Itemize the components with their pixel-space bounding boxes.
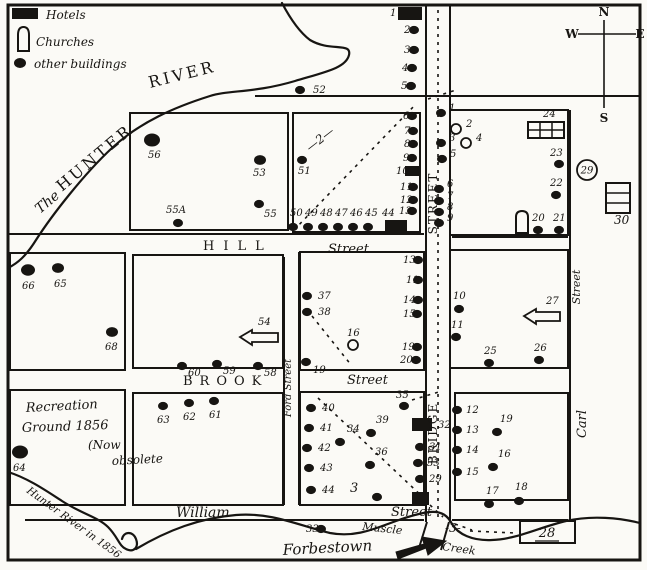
building-dot-13: [452, 426, 462, 434]
building-number: 47: [334, 208, 348, 219]
town-block: [133, 255, 283, 368]
building-number: 64: [13, 463, 26, 474]
building-number: 30: [614, 213, 630, 227]
building-dot-50: [288, 223, 298, 231]
building-number: 10: [453, 291, 466, 302]
map-text: -3-: [445, 521, 461, 535]
arrow-building-27: [524, 309, 560, 324]
building-number: 55A: [166, 205, 186, 216]
map-text: Street: [328, 242, 370, 257]
building-number: 19: [500, 414, 513, 425]
map-text: Ford Street: [283, 358, 294, 418]
map-text: Forbestown: [281, 536, 372, 559]
building-number: 7: [447, 191, 454, 202]
map-text: Street: [391, 505, 433, 520]
building-number: 5: [450, 149, 456, 160]
building-number: 61: [209, 410, 222, 421]
building-dot-18: [514, 497, 524, 505]
church-icon: [516, 211, 528, 233]
building-number: 23: [549, 148, 563, 159]
building-dot-40: [306, 404, 316, 412]
legend-churches-label: Churches: [36, 35, 94, 49]
building-number: 45: [364, 208, 378, 219]
building-number: 50: [290, 208, 303, 219]
building-number: 46: [349, 208, 363, 219]
building-number: 2: [465, 119, 472, 130]
building-dot-26: [534, 356, 544, 364]
building-dot-62: [184, 399, 194, 407]
building-dot-53: [254, 155, 266, 165]
compass-rose: N E S W: [564, 5, 644, 125]
building-number: 4: [475, 133, 482, 144]
building-dot-17: [484, 500, 494, 508]
building-number: 51: [298, 166, 311, 177]
building-number: 54: [258, 317, 271, 328]
compass-north-label: N: [599, 5, 610, 19]
building-dot-5: [406, 82, 416, 90]
building-number: 2: [403, 25, 410, 36]
open-circle-building-4: [461, 138, 471, 148]
building-number: 33: [306, 524, 319, 535]
map-text: Street: [570, 269, 583, 304]
open-circle-building-2: [451, 124, 461, 134]
building-number: 9: [447, 213, 454, 224]
building-number: 44: [321, 485, 335, 496]
building-dot-55: [254, 200, 264, 208]
building-number: 34: [347, 424, 360, 435]
building-number: 13: [466, 425, 479, 436]
legend: Hotels Churches other buildings: [12, 8, 127, 71]
building-dot-11: [451, 333, 461, 341]
map-text: Recreation: [24, 397, 98, 416]
building-dot-35: [399, 402, 409, 410]
building-number: 20: [399, 355, 413, 366]
map-text: William: [176, 505, 230, 521]
building-dot-41: [304, 424, 314, 432]
building-number: 44: [381, 208, 395, 219]
building-number: 8: [404, 139, 410, 150]
building-number: 38: [318, 307, 331, 318]
building-number: 1: [390, 8, 396, 19]
row-building-30: [606, 183, 630, 213]
building-number: 42: [317, 443, 331, 454]
building-dot-51: [297, 156, 307, 164]
building-dot-61: [209, 397, 219, 405]
building-number: 9: [403, 153, 410, 164]
building-number: 22: [549, 178, 563, 189]
building-number: 21: [552, 213, 566, 224]
building-number: 63: [157, 415, 170, 426]
building-number: 20: [531, 213, 545, 224]
building-dot-15: [452, 468, 462, 476]
building-number: 4: [401, 63, 408, 74]
building-dot-2: [409, 26, 419, 34]
building-number: 52: [313, 85, 326, 96]
building-number: 37: [318, 291, 331, 302]
map-text: STREET: [426, 172, 440, 235]
building-dot-46: [348, 223, 358, 231]
building-number: 16: [498, 449, 511, 460]
building-number: 35: [396, 390, 409, 401]
building-number: 43: [319, 463, 333, 474]
building-dot-31: [415, 443, 425, 451]
building-dot-3: [436, 139, 446, 147]
map-text: Ground 1856: [22, 418, 109, 436]
building-number: 41: [319, 423, 333, 434]
legend-other-buildings-label: other buildings: [34, 57, 127, 71]
building-number: 13: [399, 206, 412, 217]
map-text: The: [32, 188, 63, 217]
map-text: (Now: [88, 438, 121, 452]
building-number: 49: [304, 208, 318, 219]
building-number: 62: [183, 412, 196, 423]
building-dot-58: [253, 362, 263, 370]
building-dot-33: [413, 459, 423, 467]
building-dot-47: [333, 223, 343, 231]
building-dot-3: [409, 46, 419, 54]
hunter-river-1856: [8, 472, 137, 550]
building-number: 18: [515, 482, 528, 493]
building-number: 19: [402, 342, 415, 353]
building-dot-20: [533, 226, 543, 234]
map-text: 3: [350, 481, 358, 496]
building-dot-1: [436, 109, 446, 117]
building-dot-65: [52, 263, 64, 273]
building-number: 7: [404, 126, 411, 137]
building-dot-22: [551, 191, 561, 199]
building-dot-23: [554, 160, 564, 168]
building-number: 24: [542, 109, 556, 120]
legend-hotels-label: Hotels: [45, 8, 86, 22]
building-dot-64: [12, 445, 28, 458]
map-text: HILL: [203, 239, 273, 254]
building-number: 48: [319, 208, 333, 219]
building-number: 65: [54, 279, 67, 290]
building-number: 29: [428, 474, 442, 485]
building-number: 13: [403, 255, 416, 266]
building-dot-19: [492, 428, 502, 436]
building-number: 56: [148, 150, 161, 161]
map-text: BRIDGE: [426, 402, 440, 465]
building-number: 1: [449, 103, 455, 114]
building-number: 40: [321, 403, 335, 414]
building-number: 12: [466, 405, 479, 416]
building-dot-59: [212, 360, 222, 368]
building-number: 39: [376, 415, 389, 426]
hotel-building-x: [412, 492, 429, 505]
building-dot-48: [318, 223, 328, 231]
building-dot-68: [106, 327, 118, 337]
building-dot-60: [177, 362, 187, 370]
hotel-building-1: [398, 7, 422, 20]
building-number: 14: [466, 445, 479, 456]
building-number: 8: [447, 202, 453, 213]
route-2-dashed-ext: [428, 90, 456, 99]
building-dot-21: [554, 226, 564, 234]
building-number: 27: [545, 296, 559, 307]
hand-drawn-town-map: Hotels Churches other buildings N E S W …: [0, 0, 647, 570]
building-number: 19: [313, 365, 326, 376]
building-number: 36: [375, 447, 388, 458]
map-text: HUNTER: [52, 120, 136, 195]
building-dot-43: [304, 464, 314, 472]
building-dot-63: [158, 402, 168, 410]
hotel-building-44: [385, 220, 407, 232]
map-text: RIVER: [146, 57, 217, 92]
building-dot-55A: [173, 219, 183, 227]
building-dot-45: [363, 223, 373, 231]
building-number: 25: [483, 346, 497, 357]
route-2-block-diagonal: [312, 316, 352, 366]
building-number: 12: [400, 195, 413, 206]
map-text: —2—: [303, 124, 337, 155]
map-text: BROOK: [183, 374, 268, 389]
open-circle-building-16: [348, 340, 358, 350]
arrow-building-54: [240, 330, 278, 345]
building-number: 26: [533, 343, 547, 354]
building-number: 66: [22, 281, 35, 292]
hotel-swatch-icon: [12, 8, 38, 19]
building-dot-29: [415, 475, 425, 483]
building-number: 15: [466, 467, 479, 478]
building-dot-12: [452, 406, 462, 414]
building-dot-44: [306, 486, 316, 494]
building-number: 3: [404, 45, 410, 56]
building-number: 5: [401, 81, 407, 92]
route-3-dashed-east: [470, 531, 516, 533]
building-number: 15: [403, 309, 416, 320]
map-canvas: Hotels Churches other buildings N E S W …: [0, 0, 647, 570]
building-number: 55: [264, 209, 277, 220]
building-dot-x: [372, 493, 382, 501]
map-text: Carl: [575, 410, 590, 438]
town-block: [450, 250, 568, 368]
building-number: 11: [400, 182, 413, 193]
building-dot-38: [302, 308, 312, 316]
map-text: Street: [347, 373, 389, 388]
building-dot-56: [144, 133, 160, 146]
building-number: 16: [347, 328, 360, 339]
map-text: Hunter River in 1856: [23, 484, 123, 561]
building-dot-10: [454, 305, 464, 313]
building-number: 17: [486, 486, 499, 497]
building-dot-36: [365, 461, 375, 469]
building-number: 6: [403, 111, 410, 122]
building-number: 11: [406, 275, 419, 286]
map-text: Muscle: [361, 520, 404, 537]
building-dot-14: [452, 446, 462, 454]
compass-west-label: W: [564, 27, 579, 41]
building-dot-25: [484, 359, 494, 367]
map-text: Creek: [442, 540, 477, 558]
building-dot-5: [437, 155, 447, 163]
building-number: 28: [538, 526, 556, 541]
building-dot-49: [303, 223, 313, 231]
building-dot-16: [488, 463, 498, 471]
building-dot-52: [295, 86, 305, 94]
dot-icon: [14, 58, 26, 68]
building-dot-4: [407, 64, 417, 72]
church-icon: [18, 27, 29, 51]
map-content: 2345678911121313111415192037381951525049…: [8, 3, 640, 561]
building-dot-19: [301, 358, 311, 366]
compass-south-label: S: [600, 111, 609, 125]
building-number: 11: [451, 320, 464, 331]
building-number: 14: [403, 295, 416, 306]
map-text: obsolete: [111, 451, 163, 468]
building-number: 10: [396, 166, 409, 177]
building-dot-66: [21, 264, 35, 275]
circled-number-label: 29: [580, 166, 594, 177]
building-dot-37: [302, 292, 312, 300]
building-number: 53: [253, 168, 266, 179]
town-block: [133, 393, 283, 505]
building-dot-39: [366, 429, 376, 437]
building-dot-42: [302, 444, 312, 452]
building-number: 6: [447, 179, 454, 190]
building-dot-34: [335, 438, 345, 446]
building-number: 68: [105, 342, 118, 353]
